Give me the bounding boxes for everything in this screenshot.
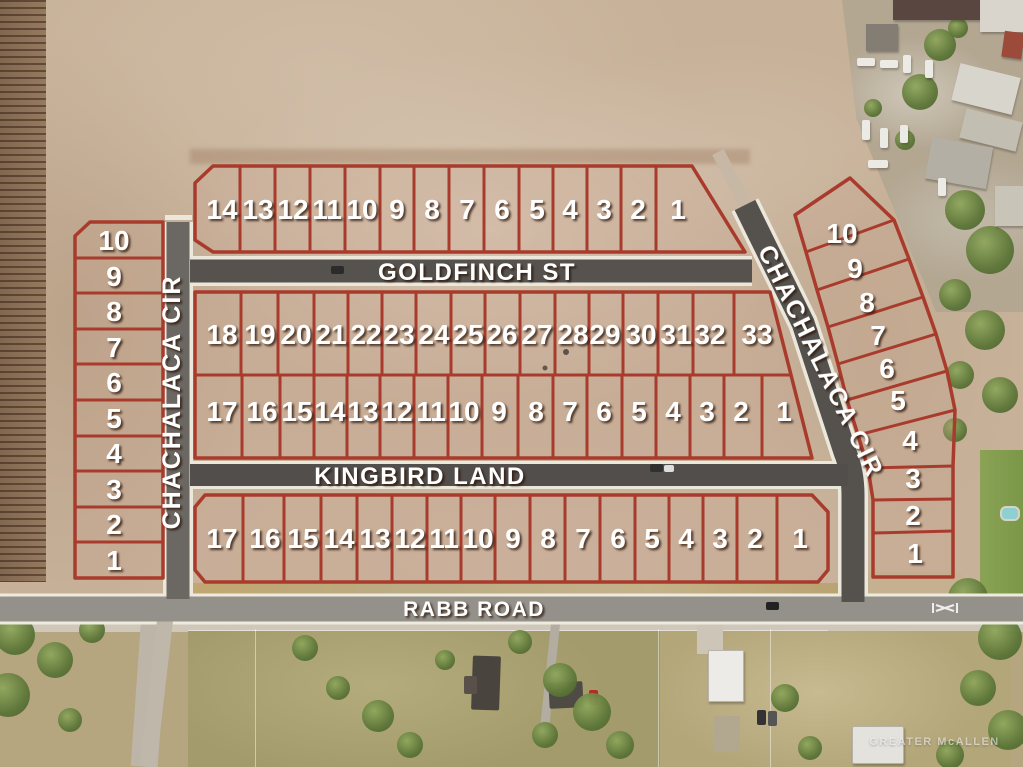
lot-number-middle_south_row-16: 16 <box>246 396 277 427</box>
car <box>331 266 344 274</box>
lot-number-west_column-7: 7 <box>106 332 122 363</box>
lot-number-middle_north_row-28: 28 <box>557 319 588 350</box>
lot-number-west_column-3: 3 <box>106 474 122 505</box>
lot-number-north_row-8: 8 <box>424 194 440 225</box>
lot-number-west_column-9: 9 <box>106 261 122 292</box>
lot-number-south_row-5: 5 <box>644 523 660 554</box>
lot-number-south_row-6: 6 <box>610 523 626 554</box>
lot-number-middle_north_row-24: 24 <box>418 319 450 350</box>
lot-number-north_row-10: 10 <box>346 194 377 225</box>
lot-number-east_column-5: 5 <box>890 385 906 416</box>
lot-number-north_row-14: 14 <box>206 194 238 225</box>
lot-number-middle_north_row-27: 27 <box>521 319 552 350</box>
street-name-goldfinch: GOLDFINCH ST <box>378 259 576 286</box>
lot-number-middle_south_row-15: 15 <box>281 396 312 427</box>
lot-number-east_column-9: 9 <box>847 253 863 284</box>
lot-number-north_row-12: 12 <box>277 194 308 225</box>
lot-number-middle_north_row-18: 18 <box>206 319 237 350</box>
lot-number-middle_south_row-13: 13 <box>347 396 378 427</box>
lot-number-north_row-6: 6 <box>494 194 510 225</box>
lot-number-south_row-11: 11 <box>429 523 459 554</box>
lot-number-south_row-14: 14 <box>323 523 355 554</box>
lot-number-middle_south_row-3: 3 <box>699 396 715 427</box>
lot-number-middle_north_row-32: 32 <box>694 319 725 350</box>
lot-number-south_row-7: 7 <box>575 523 591 554</box>
lot-number-south_row-16: 16 <box>249 523 280 554</box>
lot-number-north_row-11: 11 <box>312 194 342 225</box>
aerial-plat-map: 1413121110987654321181920212223242526272… <box>0 0 1023 767</box>
lot-number-north_row-3: 3 <box>596 194 612 225</box>
road-south-stub <box>148 612 166 767</box>
lot-number-north_row-4: 4 <box>562 194 578 225</box>
lot-number-middle_north_row-20: 20 <box>280 319 311 350</box>
lot-number-west_column-4: 4 <box>106 438 122 469</box>
lot-number-south_row-13: 13 <box>359 523 390 554</box>
lot-number-middle_north_row-23: 23 <box>383 319 414 350</box>
lot-number-south_row-3: 3 <box>712 523 728 554</box>
lot-number-south_row-10: 10 <box>462 523 493 554</box>
lot-number-middle_north_row-26: 26 <box>486 319 517 350</box>
lot-number-west_column-1: 1 <box>106 545 122 576</box>
lot-number-middle_south_row-9: 9 <box>491 396 507 427</box>
lot-number-middle_north_row-30: 30 <box>625 319 656 350</box>
lot-number-west_column-5: 5 <box>106 403 122 434</box>
lot-number-south_row-17: 17 <box>206 523 237 554</box>
street-name-kingbird: KINGBIRD LAND <box>314 463 526 490</box>
lot-number-west_column-2: 2 <box>106 509 122 540</box>
lot-number-east_column-8: 8 <box>859 287 875 318</box>
lot-number-east_column-4: 4 <box>902 425 918 456</box>
lot-number-north_row-2: 2 <box>630 194 646 225</box>
lot-number-east_column-1: 1 <box>907 538 923 569</box>
lot-number-middle_north_row-29: 29 <box>589 319 620 350</box>
lot-number-west_column-8: 8 <box>106 296 122 327</box>
watermark: GREATER McALLEN <box>852 736 1017 748</box>
lot-number-south_row-2: 2 <box>747 523 763 554</box>
car <box>650 464 663 472</box>
lot-number-middle_north_row-22: 22 <box>350 319 381 350</box>
lot-number-middle_south_row-8: 8 <box>528 396 544 427</box>
lot-number-south_row-15: 15 <box>287 523 318 554</box>
lot-number-east_column-2: 2 <box>905 500 921 531</box>
lot-number-middle_south_row-2: 2 <box>733 396 749 427</box>
lot-number-middle_south_row-12: 12 <box>381 396 412 427</box>
lot-number-north_row-5: 5 <box>529 194 545 225</box>
lot-number-south_row-12: 12 <box>394 523 425 554</box>
lot-number-south_row-4: 4 <box>678 523 694 554</box>
street-name-chachalaca-west: CHACHALACA CIR <box>158 275 186 530</box>
car <box>766 602 779 610</box>
lot-number-middle_south_row-17: 17 <box>206 396 237 427</box>
lot-number-west_column-6: 6 <box>106 367 122 398</box>
street-name-rabb: RABB ROAD <box>403 598 545 621</box>
lot-number-east_column-3: 3 <box>905 463 921 494</box>
lot-number-middle_north_row-21: 21 <box>315 319 346 350</box>
lot-number-middle_south_row-1: 1 <box>776 396 792 427</box>
lot-number-middle_south_row-4: 4 <box>665 396 681 427</box>
lot-number-north_row-7: 7 <box>459 194 475 225</box>
lot-number-south_row-1: 1 <box>792 523 808 554</box>
lot-number-middle_south_row-11: 11 <box>416 396 446 427</box>
lot-number-middle_north_row-33: 33 <box>741 319 772 350</box>
car <box>664 465 674 472</box>
lot-number-north_row-1: 1 <box>670 194 686 225</box>
lot-number-middle_north_row-25: 25 <box>452 319 483 350</box>
dirt-stub <box>718 152 747 208</box>
plat-overlay: 1413121110987654321181920212223242526272… <box>0 0 1023 767</box>
lot-number-middle_south_row-7: 7 <box>562 396 578 427</box>
lot-number-middle_south_row-5: 5 <box>631 396 647 427</box>
lot-number-south_row-8: 8 <box>540 523 556 554</box>
lot-number-middle_south_row-6: 6 <box>596 396 612 427</box>
lot-number-east_column-7: 7 <box>870 320 886 351</box>
lot-number-east_column-10: 10 <box>826 218 857 249</box>
lot-number-middle_north_row-31: 31 <box>660 319 691 350</box>
lot-number-middle_south_row-14: 14 <box>314 396 346 427</box>
dead-end-cap <box>165 215 192 220</box>
lot-number-north_row-9: 9 <box>389 194 405 225</box>
lot-number-middle_south_row-10: 10 <box>448 396 479 427</box>
lot-number-south_row-9: 9 <box>505 523 521 554</box>
lot-number-middle_north_row-19: 19 <box>244 319 275 350</box>
lot-number-west_column-10: 10 <box>98 225 129 256</box>
lot-divider <box>873 531 953 533</box>
lot-number-east_column-6: 6 <box>879 353 895 384</box>
lot-number-north_row-13: 13 <box>242 194 273 225</box>
